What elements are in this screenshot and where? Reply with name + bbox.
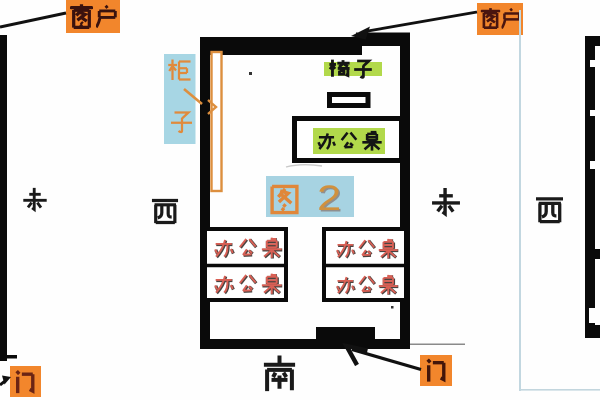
- svg-text:2: 2: [317, 179, 341, 218]
